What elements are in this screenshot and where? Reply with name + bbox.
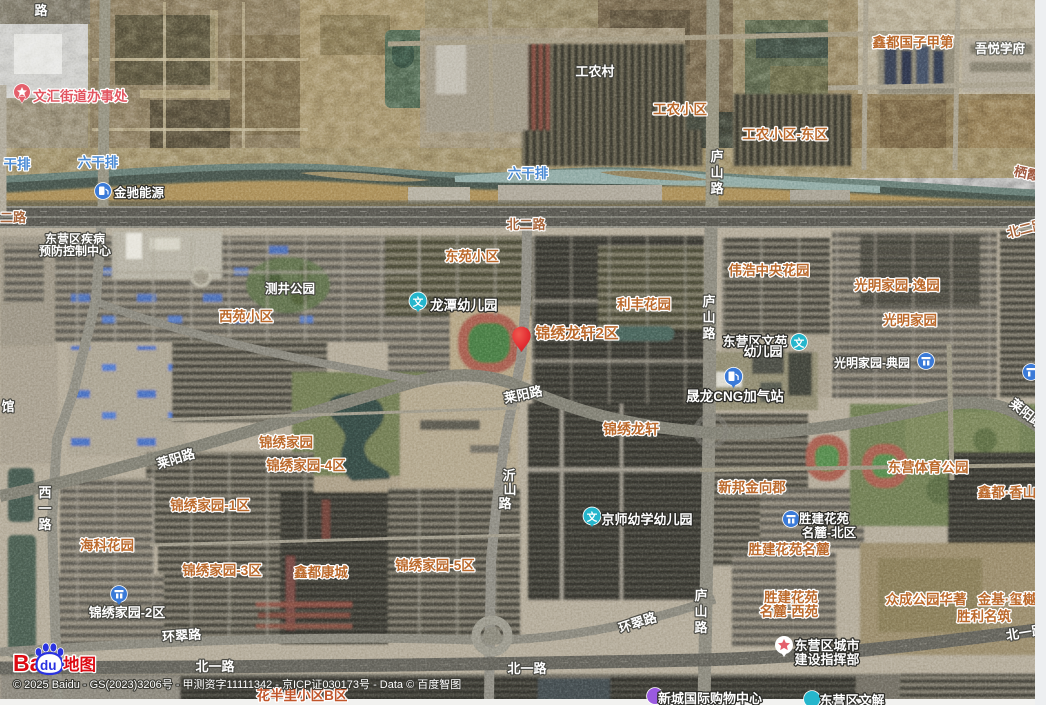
svg-text:山: 山 [702,310,715,325]
svg-text:庐: 庐 [702,294,715,309]
svg-text:名麓-西苑: 名麓-西苑 [760,603,819,619]
svg-text:东营区城市: 东营区城市 [794,638,859,653]
svg-text:锦绣家园-5区: 锦绣家园-5区 [395,557,475,573]
svg-text:路: 路 [710,181,724,196]
svg-text:北二路: 北二路 [506,217,546,232]
svg-text:© 2025 Baidu - GS(2023)3206号 -: © 2025 Baidu - GS(2023)3206号 - 甲测资字11111… [13,677,461,691]
svg-text:北一路: 北一路 [507,661,547,676]
svg-text:工农小区: 工农小区 [653,101,707,117]
svg-text:金基·玺樾: 金基·玺樾 [977,591,1037,607]
svg-text:二路: 二路 [0,210,27,225]
svg-text:鑫都康城: 鑫都康城 [293,564,348,580]
svg-text:工农村: 工农村 [575,64,614,79]
svg-text:路: 路 [498,496,512,511]
svg-text:龙潭幼儿园: 龙潭幼儿园 [429,297,498,313]
svg-text:胜建花苑: 胜建花苑 [764,589,818,605]
svg-text:东营区文解: 东营区文解 [819,693,884,705]
svg-text:伟浩中央花园: 伟浩中央花园 [729,262,810,278]
svg-text:山: 山 [694,604,707,619]
svg-text:胜建花苑名麓: 胜建花苑名麓 [749,541,830,557]
svg-text:文: 文 [793,337,805,350]
svg-text:光明家园·逸园: 光明家园·逸园 [853,277,940,293]
svg-text:众成公园华著: 众成公园华著 [886,591,967,607]
svg-text:du: du [40,658,57,673]
svg-text:西: 西 [38,485,51,500]
svg-text:锦绣家园: 锦绣家园 [259,434,313,450]
svg-text:建设指挥部: 建设指挥部 [794,652,859,667]
svg-text:胜利名筑: 胜利名筑 [957,608,1011,624]
svg-text:锦绣家园-3区: 锦绣家园-3区 [182,562,262,578]
svg-text:预防控制中心: 预防控制中心 [39,243,111,258]
svg-text:新城国际购物中心: 新城国际购物中心 [658,691,762,705]
svg-text:锦绣家园-4区: 锦绣家园-4区 [266,457,346,473]
svg-text:京师幼学幼儿园: 京师幼学幼儿园 [601,512,692,527]
svg-text:锦绣家园-1区: 锦绣家园-1区 [170,497,250,513]
svg-text:馆: 馆 [1,399,14,414]
svg-text:六干排: 六干排 [78,154,119,170]
svg-text:文: 文 [412,296,424,309]
svg-text:文汇街道办事处: 文汇街道办事处 [33,88,128,104]
svg-text:干排: 干排 [4,156,31,172]
svg-text:山: 山 [710,165,723,180]
svg-text:利丰花园: 利丰花园 [617,296,671,312]
svg-text:沂: 沂 [502,468,515,483]
svg-text:路: 路 [694,620,708,635]
svg-text:鑫都·香山: 鑫都·香山 [977,484,1037,500]
svg-text:地图: 地图 [63,654,96,674]
svg-text:六干排: 六干排 [508,165,549,181]
svg-text:山: 山 [503,482,516,497]
svg-text:光明家园-典园: 光明家园-典园 [833,355,910,370]
svg-text:一: 一 [38,501,51,516]
svg-text:环翠路: 环翠路 [162,627,203,645]
svg-text:晟龙CNG加气站: 晟龙CNG加气站 [686,388,784,404]
svg-text:庐: 庐 [710,149,723,164]
svg-text:光明家园: 光明家园 [882,312,937,328]
svg-text:东苑小区: 东苑小区 [445,248,499,264]
svg-text:路: 路 [702,326,716,341]
svg-text:路: 路 [38,517,52,532]
svg-text:东营体育公园: 东营体育公园 [888,459,969,475]
svg-text:海科花园: 海科花园 [80,537,134,553]
svg-text:金驰能源: 金驰能源 [113,185,165,200]
svg-text:文: 文 [586,511,598,524]
svg-text:名麓-北区: 名麓-北区 [802,525,857,540]
svg-text:工农小区-东区: 工农小区-东区 [742,126,828,142]
svg-text:吾悦学府: 吾悦学府 [975,41,1026,56]
svg-text:庐: 庐 [694,588,707,603]
svg-text:锦绣家园-2区: 锦绣家园-2区 [89,605,166,620]
svg-text:幼儿园: 幼儿园 [743,344,782,359]
svg-text:胜建花苑: 胜建花苑 [799,511,850,526]
svg-text:新邦金向郡: 新邦金向郡 [718,479,786,495]
svg-text:测井公园: 测井公园 [265,281,315,296]
svg-text:西苑小区: 西苑小区 [219,309,273,324]
svg-text:锦绣龙轩: 锦绣龙轩 [603,421,659,437]
svg-text:鑫都国子甲第: 鑫都国子甲第 [872,34,954,50]
svg-text:路: 路 [34,3,48,18]
svg-text:北一路: 北一路 [195,659,235,674]
svg-text:锦绣龙轩2区: 锦绣龙轩2区 [535,324,618,342]
